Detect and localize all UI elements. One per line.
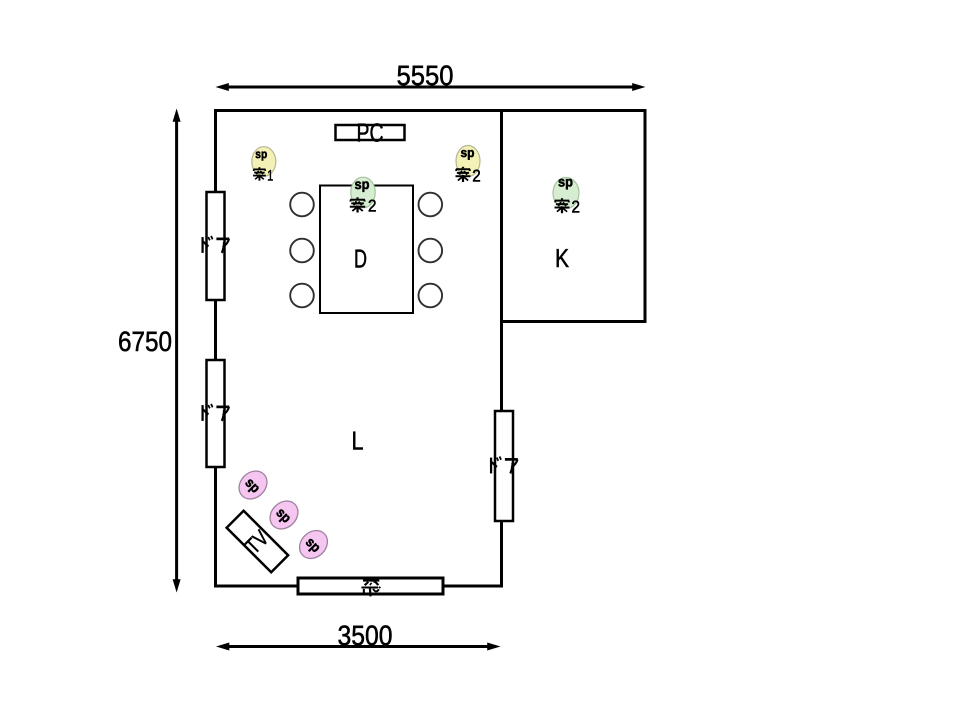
svg-text:2: 2 [572, 198, 581, 217]
svg-text:sp: sp [255, 147, 267, 161]
svg-text:D: D [354, 244, 367, 274]
svg-text:sp: sp [355, 176, 370, 192]
svg-text:3500: 3500 [338, 620, 393, 651]
svg-text:sp: sp [558, 174, 573, 190]
svg-text:1: 1 [267, 168, 273, 185]
svg-text:6750: 6750 [118, 326, 172, 357]
svg-text:K: K [555, 243, 570, 273]
svg-text:L: L [352, 426, 364, 456]
svg-text:2: 2 [368, 197, 377, 216]
svg-text:sp: sp [461, 145, 475, 160]
svg-text:PC: PC [357, 118, 384, 148]
svg-text:5550: 5550 [397, 60, 454, 91]
svg-text:2: 2 [472, 167, 481, 186]
